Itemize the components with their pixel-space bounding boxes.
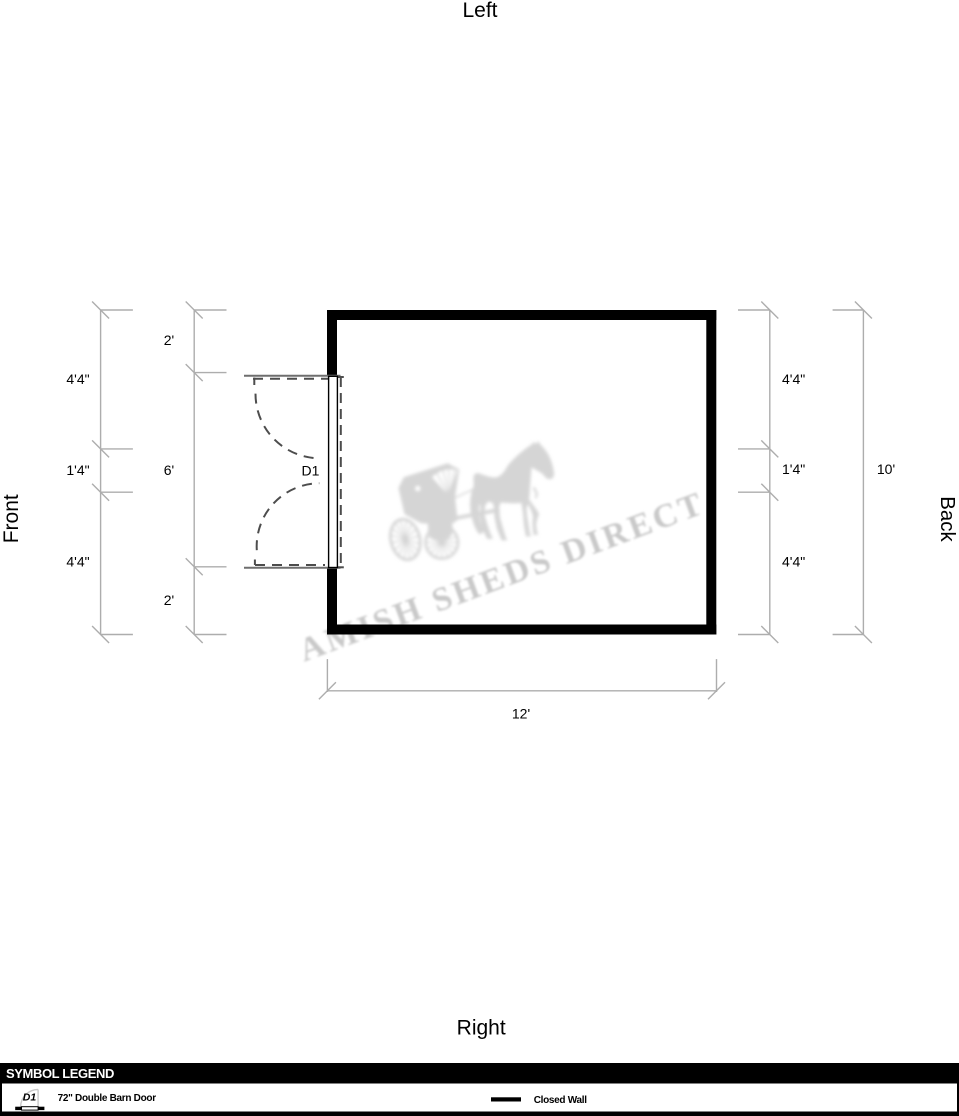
svg-text:1'4": 1'4" [66,462,89,478]
svg-text:D1: D1 [302,463,320,479]
svg-text:Front: Front [0,494,23,543]
svg-text:4'4": 4'4" [66,554,89,570]
svg-text:4'4": 4'4" [782,371,805,387]
svg-text:1'4": 1'4" [782,461,805,477]
svg-text:D1: D1 [23,1092,37,1104]
svg-text:6': 6' [164,462,174,478]
svg-text:4'4": 4'4" [66,371,89,387]
svg-text:4'4": 4'4" [782,554,805,570]
svg-text:2': 2' [164,592,174,608]
svg-text:SYMBOL LEGEND: SYMBOL LEGEND [6,1066,114,1081]
svg-text:10': 10' [877,461,895,477]
svg-text:2': 2' [164,332,174,348]
svg-text:Left: Left [462,0,497,22]
svg-text:72" Double Barn Door: 72" Double Barn Door [58,1093,157,1104]
svg-text:Closed Wall: Closed Wall [534,1095,588,1106]
svg-text:Back: Back [936,496,959,542]
svg-text:Right: Right [457,1017,506,1040]
svg-text:AMISH SHEDS DIRECT: AMISH SHEDS DIRECT [294,485,710,670]
svg-text:12': 12' [512,706,530,722]
